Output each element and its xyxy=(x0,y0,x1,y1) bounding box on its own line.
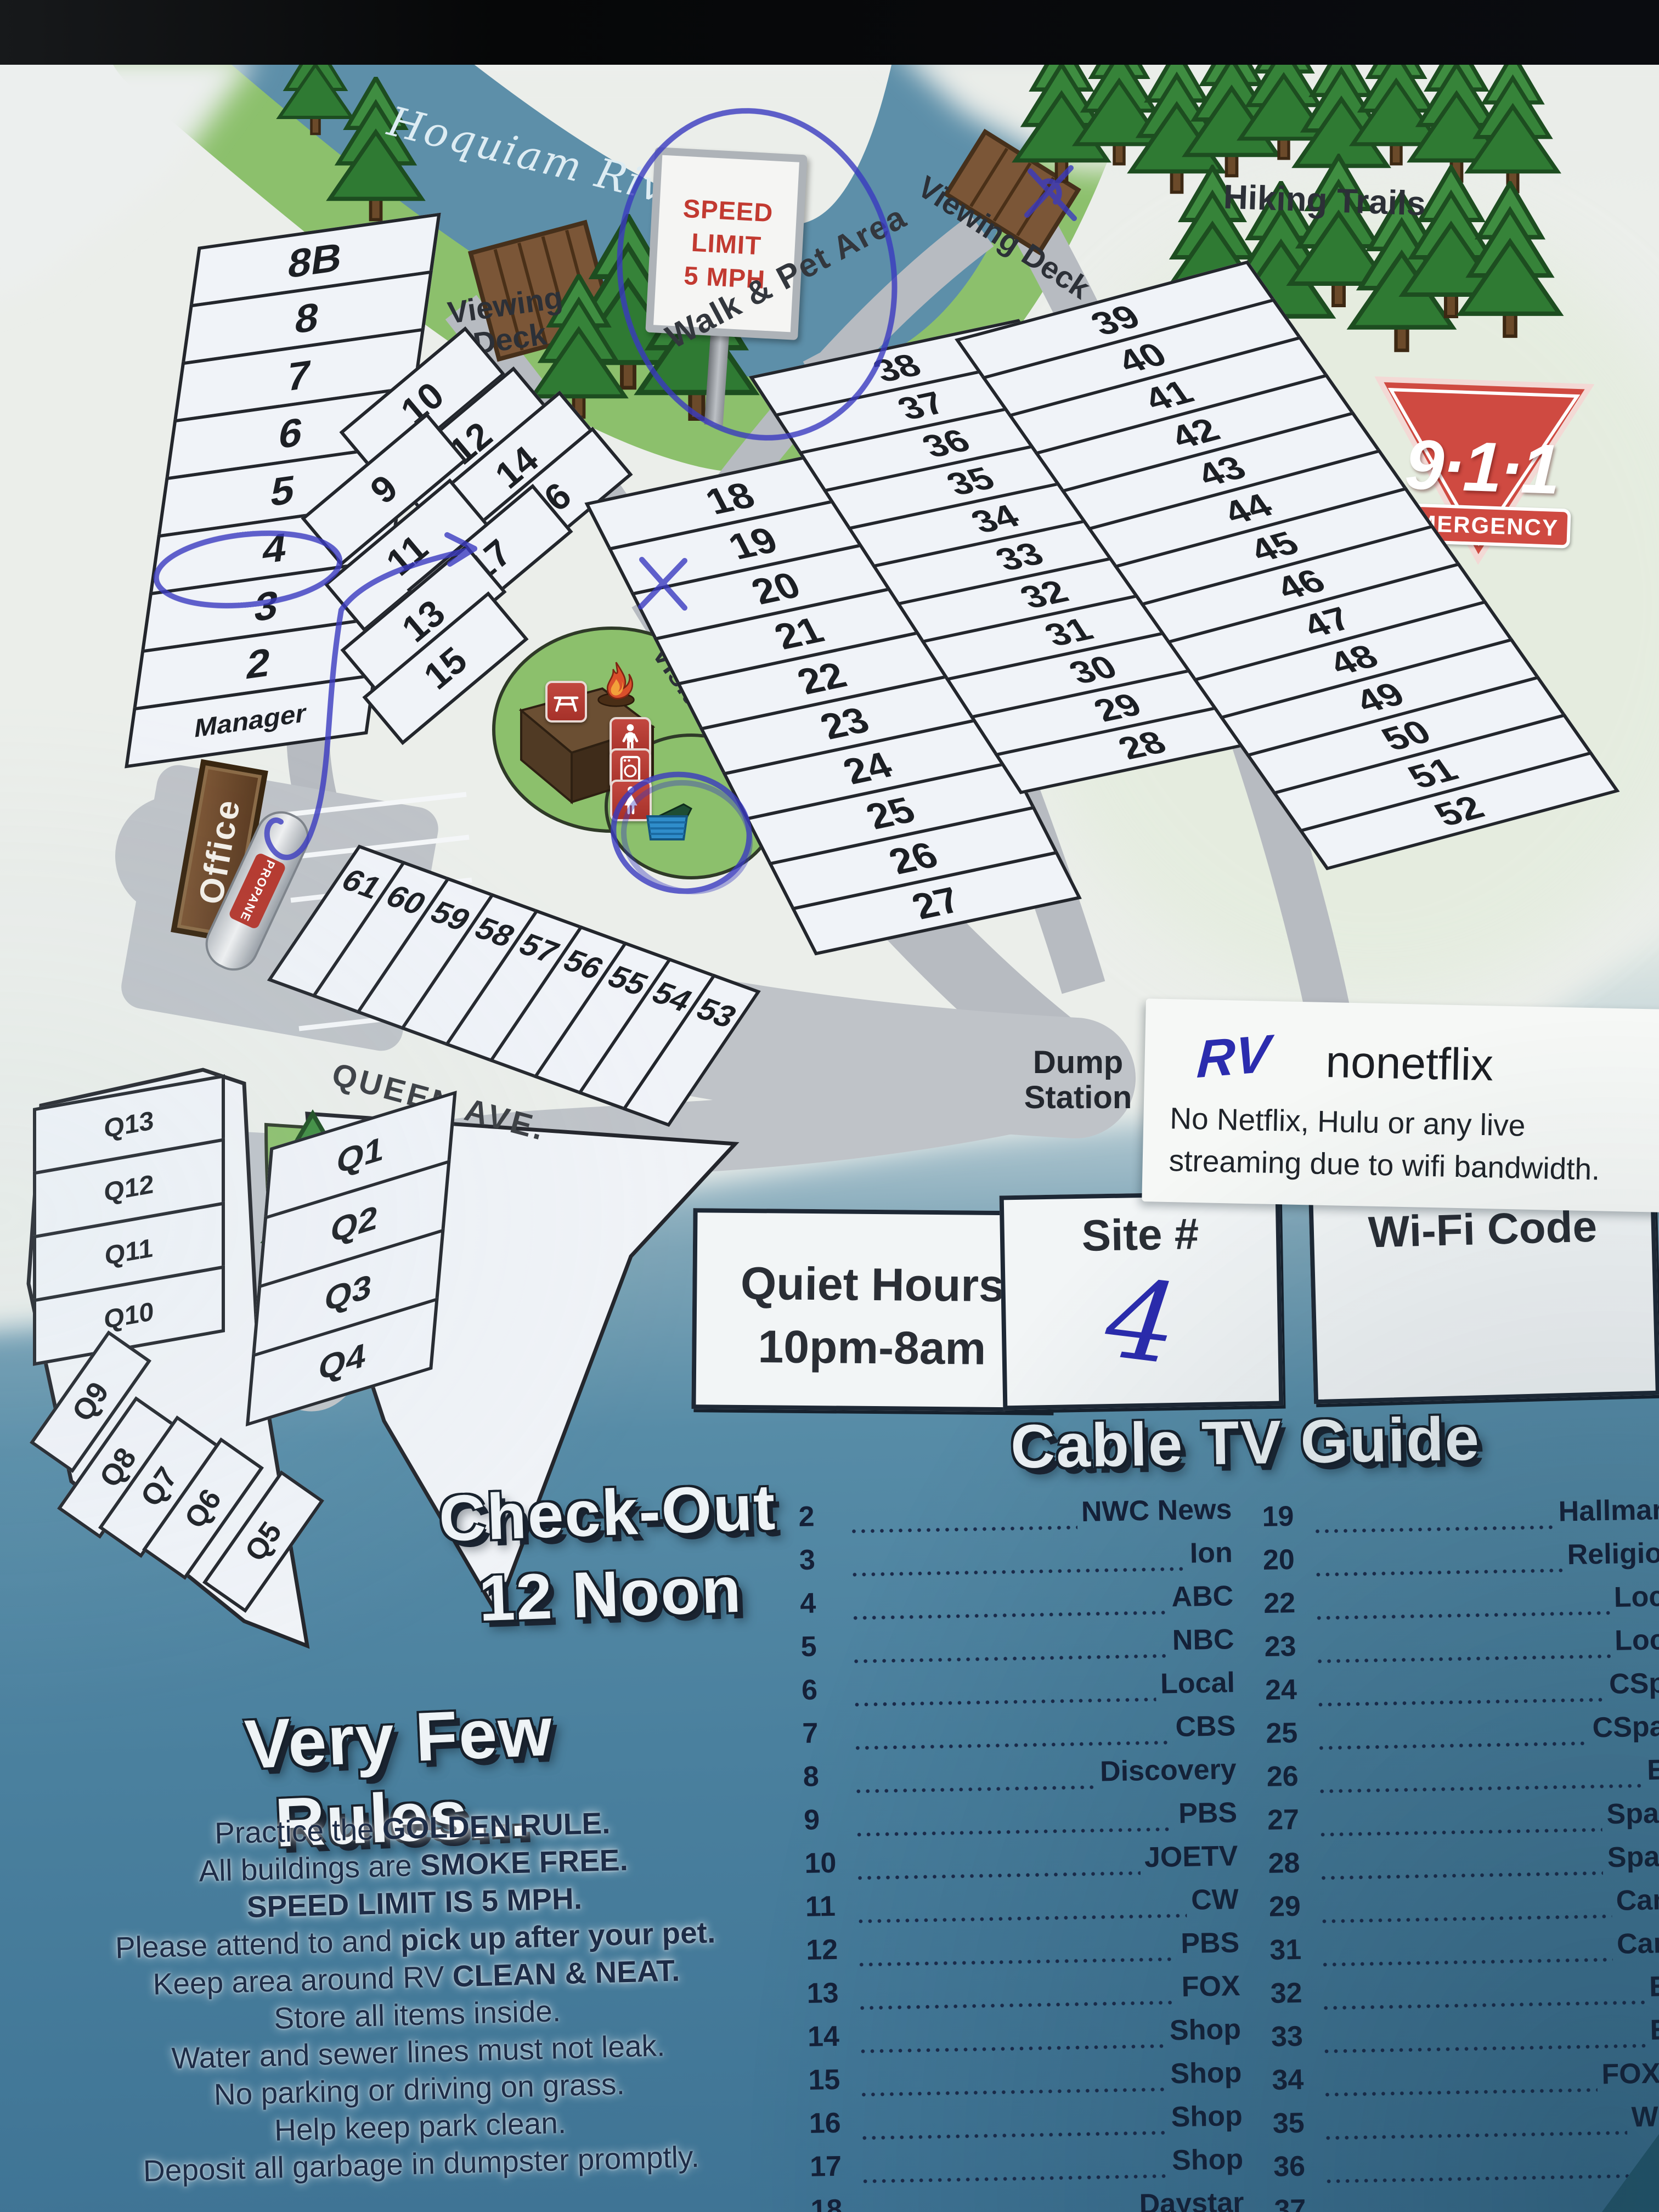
dotted-leader xyxy=(1317,1782,1643,1795)
dotted-leader xyxy=(855,1825,1175,1838)
dotted-leader xyxy=(849,1523,1077,1535)
channel-number: 26 xyxy=(1266,1759,1315,1793)
channel-name: Shop xyxy=(1172,2143,1244,2177)
dotted-leader xyxy=(857,1955,1177,1968)
channel-name: FOX xyxy=(1181,1970,1240,2004)
channel-name: PBS xyxy=(1178,1796,1238,1830)
channel-number: 23 xyxy=(1264,1629,1313,1663)
channel-number: 24 xyxy=(1265,1673,1314,1707)
channel-number: 22 xyxy=(1263,1586,1312,1620)
cable-channel-row: 16Shop xyxy=(809,2100,1243,2151)
note-body-line1: No Netflix, Hulu or any live xyxy=(1170,1101,1653,1145)
dotted-leader xyxy=(1317,1740,1588,1752)
rule-text: GOLDEN RULE. xyxy=(382,1806,611,1846)
channel-number: 2 xyxy=(798,1499,847,1533)
channel-number: 28 xyxy=(1268,1846,1317,1880)
cable-channel-row: 36T xyxy=(1273,2143,1659,2194)
channel-name: Ed xyxy=(1647,1753,1659,1787)
dotted-leader xyxy=(851,1609,1167,1622)
rule-text: Keep area around RV xyxy=(153,1959,453,2001)
cable-channel-row: 31Cana xyxy=(1269,1927,1659,1977)
channel-name: Discovery xyxy=(1100,1753,1237,1788)
cable-channel-row: 25CSpan xyxy=(1266,1710,1659,1760)
wifi-streaming-note: RV nonetflix No Netflix, Hulu or any liv… xyxy=(1142,998,1659,1212)
rule-text: SMOKE FREE. xyxy=(420,1843,628,1882)
dotted-leader xyxy=(1321,1956,1613,1968)
channel-number: 32 xyxy=(1270,1976,1319,2010)
dotted-leader xyxy=(851,1652,1168,1665)
cable-channel-row: 13FOX xyxy=(806,1970,1240,2021)
channel-number: 18 xyxy=(810,2193,859,2212)
channel-name: Shop xyxy=(1170,2056,1242,2090)
channel-number: 3 xyxy=(799,1543,848,1577)
dotted-leader xyxy=(1319,1912,1612,1925)
channel-name: Religion xyxy=(1567,1537,1659,1572)
dotted-leader xyxy=(855,1869,1141,1882)
channel-name: PBS xyxy=(1181,1926,1240,1960)
checkout-line2: 12 Noon xyxy=(433,1548,787,1641)
cable-channel-row: 11CW xyxy=(805,1883,1239,1934)
note-title: nonetflix xyxy=(1325,1036,1494,1091)
channel-number: 10 xyxy=(804,1846,853,1880)
dumpster-icon xyxy=(640,797,695,840)
dotted-leader xyxy=(861,2172,1168,2185)
channel-name: CBS xyxy=(1175,1709,1236,1743)
channel-number: 5 xyxy=(800,1629,849,1663)
channel-number: 34 xyxy=(1272,2063,1321,2097)
cable-channel-row: 28Spani xyxy=(1268,1840,1659,1891)
channel-name: ES xyxy=(1650,2013,1659,2047)
channel-number: 7 xyxy=(802,1716,851,1750)
channel-name: NBC xyxy=(1172,1623,1234,1657)
channel-number: 14 xyxy=(808,2019,856,2053)
note-handwritten-rv: RV xyxy=(1195,1023,1272,1090)
channel-name: Cana xyxy=(1617,1927,1659,1961)
channel-number: 37 xyxy=(1274,2193,1323,2212)
cable-channel-row: 3Ion xyxy=(799,1536,1233,1587)
channel-number: 6 xyxy=(802,1673,850,1707)
cable-channel-row: 12PBS xyxy=(806,1926,1240,1977)
channel-name: Loca xyxy=(1613,1580,1659,1614)
channel-name: CW xyxy=(1191,1883,1239,1917)
channel-number: 11 xyxy=(805,1889,854,1923)
channel-number: 31 xyxy=(1269,1933,1318,1967)
channel-name: Spani xyxy=(1606,1797,1659,1831)
site-number-box: Site # 4 xyxy=(1000,1191,1284,1410)
dotted-leader xyxy=(1316,1696,1605,1708)
channel-number: 35 xyxy=(1272,2106,1321,2140)
rule-text: Please attend to and xyxy=(115,1923,400,1965)
dotted-leader xyxy=(1322,2042,1646,2055)
photo-background-edge xyxy=(0,0,1659,65)
dotted-leader xyxy=(1319,1869,1604,1882)
site-number-handwritten-value: 4 xyxy=(999,1242,1284,1402)
picnic-area-icon xyxy=(545,681,587,723)
rule-text: CLEAN & NEAT. xyxy=(452,1953,680,1993)
dotted-leader xyxy=(860,2129,1167,2142)
channel-number: 17 xyxy=(810,2149,859,2183)
quiet-hours-box: Quiet Hours 10pm-8am xyxy=(691,1208,1053,1412)
campfire-icon xyxy=(591,658,641,709)
hiking-trails-label: Hiking Trails xyxy=(1223,178,1426,224)
cable-channel-row: 29Cana xyxy=(1268,1883,1659,1934)
cable-channel-row: 5NBC xyxy=(800,1623,1234,1674)
quiet-hours-line1: Quiet Hours xyxy=(697,1256,1048,1313)
channel-name: CSpan xyxy=(1592,1710,1659,1745)
cable-guide-left-column: 2NWC News3Ion4ABC5NBC6Local7CBS8Discover… xyxy=(798,1493,1244,2212)
checkout-line1: Check-Out xyxy=(431,1467,785,1560)
dump-station-label: Dump Station xyxy=(1004,1045,1152,1115)
dotted-leader xyxy=(1324,2171,1659,2185)
channel-name: Cana xyxy=(1616,1883,1659,1917)
dotted-leader xyxy=(852,1696,1156,1709)
channel-name: Shop xyxy=(1171,2100,1243,2134)
channel-name: FOX N xyxy=(1601,2057,1659,2091)
note-body-line2: streaming due to wifi bandwidth. xyxy=(1169,1143,1652,1188)
cable-channel-row: 10JOETV xyxy=(804,1839,1238,1891)
channel-number: 4 xyxy=(800,1586,849,1620)
dotted-leader xyxy=(858,2042,1165,2055)
checkout-heading: Check-Out 12 Noon xyxy=(431,1467,787,1641)
channel-name: NWC News xyxy=(1081,1493,1232,1528)
rule-text: Help keep park clean. xyxy=(274,2106,566,2147)
channel-number: 33 xyxy=(1271,2019,1320,2053)
dotted-leader xyxy=(850,1565,1186,1579)
rule-text: No parking or driving on grass. xyxy=(213,2067,625,2112)
cable-channel-row: 27Spani xyxy=(1267,1797,1659,1847)
cable-channel-row: 23Loca xyxy=(1264,1623,1659,1674)
channel-name: Spani xyxy=(1607,1840,1659,1874)
rule-text: Store all items inside. xyxy=(274,1994,561,2035)
rule-text: pick up after your pet. xyxy=(400,1915,716,1957)
channel-number: 13 xyxy=(806,1976,855,2010)
channel-name: Wea xyxy=(1631,2100,1659,2134)
channel-number: 36 xyxy=(1273,2149,1322,2183)
dotted-leader xyxy=(857,1999,1177,2012)
channel-number: 27 xyxy=(1267,1803,1316,1837)
cable-channel-row: 17Shop xyxy=(810,2143,1244,2194)
quiet-hours-line2: 10pm-8am xyxy=(696,1319,1048,1376)
cable-channel-row: 8Discovery xyxy=(803,1753,1237,1804)
channel-number: 12 xyxy=(806,1933,855,1967)
cable-channel-row: 34FOX N xyxy=(1272,2057,1659,2107)
dotted-leader xyxy=(859,2085,1166,2098)
cable-channel-row: 24CSpa xyxy=(1265,1667,1659,1717)
channel-name: CSpa xyxy=(1609,1667,1659,1701)
cable-channel-row: 2NWC News xyxy=(798,1493,1232,1544)
channel-number: 15 xyxy=(808,2063,857,2097)
cable-channel-row: 15Shop xyxy=(808,2056,1242,2107)
dotted-leader xyxy=(1323,2129,1627,2142)
dotted-leader xyxy=(854,1784,1096,1796)
dotted-leader xyxy=(853,1739,1171,1752)
cable-tv-guide-title: Cable TV Guide xyxy=(861,1401,1630,1485)
channel-name: ABC xyxy=(1171,1579,1234,1613)
cable-channel-row: 22Loca xyxy=(1263,1580,1659,1630)
channel-number: 16 xyxy=(809,2106,857,2140)
cable-guide-right-column: 19Hallmark20Religion22Loca23Loca24CSpa25… xyxy=(1262,1493,1659,2212)
rule-text: SPEED LIMIT IS 5 MPH. xyxy=(246,1881,583,1924)
channel-number: 19 xyxy=(1262,1499,1311,1533)
rule-text: All buildings are xyxy=(199,1848,421,1888)
dotted-leader xyxy=(1313,1566,1563,1578)
cable-channel-row: 6Local xyxy=(802,1666,1235,1717)
cable-channel-row: 9PBS xyxy=(804,1796,1238,1847)
channel-number: 25 xyxy=(1266,1716,1314,1750)
speed-sign-line2: LIMIT xyxy=(691,229,762,258)
dotted-leader xyxy=(1321,1999,1645,2012)
channel-name: Loca xyxy=(1615,1623,1659,1657)
dotted-leader xyxy=(856,1912,1187,1926)
channel-number: 20 xyxy=(1262,1543,1311,1577)
cable-channel-row: 7CBS xyxy=(802,1709,1236,1760)
channel-name: JOETV xyxy=(1144,1839,1238,1874)
channel-name: Ion xyxy=(1189,1536,1233,1570)
wifi-code-box: Wi-Fi Code xyxy=(1308,1183,1659,1404)
channel-number: 9 xyxy=(804,1803,853,1837)
channel-name: ES xyxy=(1649,1970,1659,2004)
channel-name: Hallmark xyxy=(1558,1493,1659,1528)
channel-name: Daystar xyxy=(1139,2186,1244,2212)
speed-sign-line1: SPEED xyxy=(682,195,774,225)
dotted-leader xyxy=(1323,2086,1598,2098)
propane-label: PROPANE xyxy=(237,858,278,924)
dotted-leader xyxy=(1314,1609,1610,1622)
cable-channel-row: 20Religion xyxy=(1262,1537,1659,1587)
channel-number: 8 xyxy=(803,1759,851,1793)
cable-channel-row: 14Shop xyxy=(808,2013,1242,2064)
dotted-leader xyxy=(1315,1652,1611,1665)
cable-channel-row: 32ES xyxy=(1270,1970,1659,2021)
rv-park-map-flyer: Hoquiam River SPEED LIMIT 5 MPH Viewing … xyxy=(0,0,1659,2212)
rule-text: Practice the xyxy=(214,1812,382,1850)
cable-channel-row: 26Ed xyxy=(1266,1753,1659,1804)
channel-name: Local xyxy=(1160,1666,1235,1700)
cable-channel-row: 35Wea xyxy=(1272,2100,1659,2151)
channel-number: 29 xyxy=(1268,1889,1317,1923)
dotted-leader xyxy=(1318,1826,1603,1838)
cable-channel-row: 4ABC xyxy=(800,1579,1234,1630)
cable-channel-row: 33ES xyxy=(1271,2013,1659,2064)
sites-q-left-column: Q13Q12Q11Q10 xyxy=(33,1077,225,1366)
rules-list: Practice the GOLDEN RULE.All buildings a… xyxy=(28,1803,805,2196)
dotted-leader xyxy=(1313,1523,1554,1536)
cable-channel-row: 19Hallmark xyxy=(1262,1493,1659,1544)
channel-name: Shop xyxy=(1169,2013,1241,2047)
